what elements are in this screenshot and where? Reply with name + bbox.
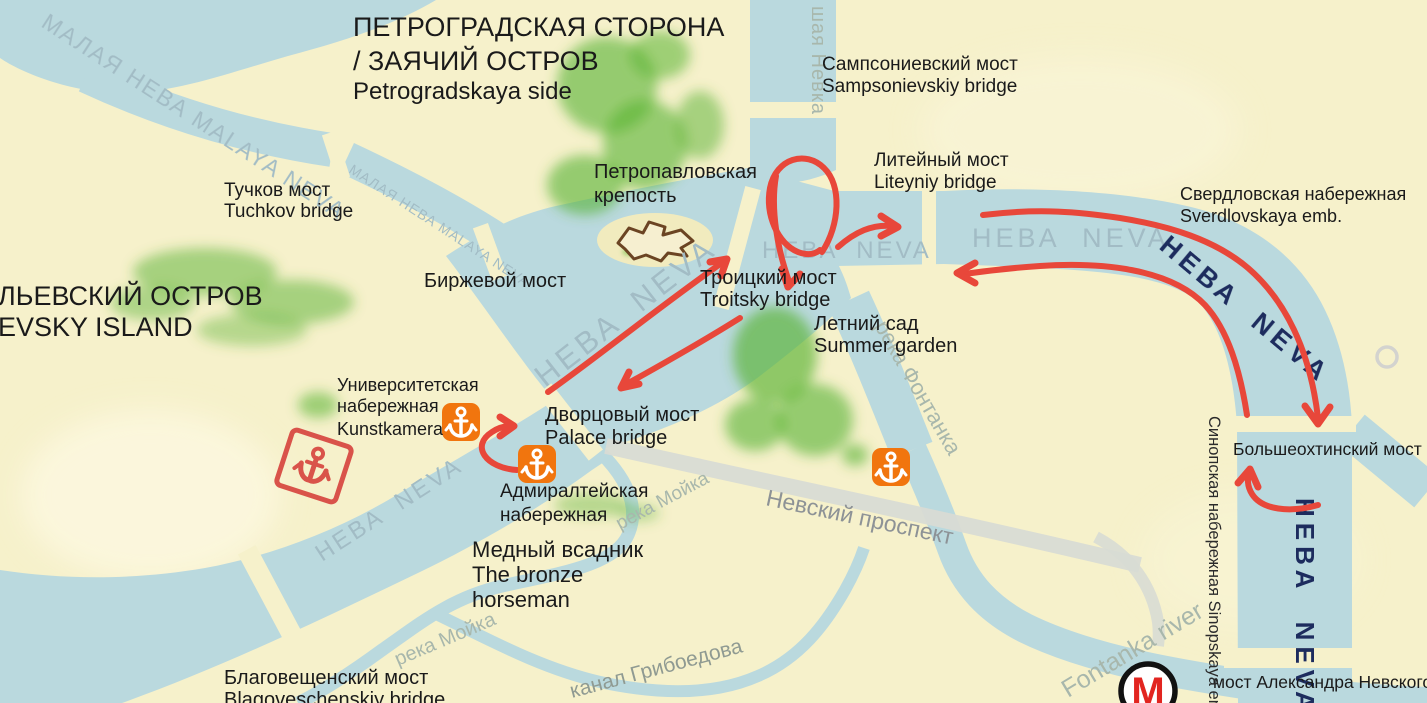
- metro-letter: M: [1131, 670, 1164, 703]
- label-line: Tuchkov bridge: [224, 201, 353, 222]
- label-line: Медный всадник: [472, 537, 643, 562]
- anchor-icon-fontanka: [872, 448, 910, 486]
- label-line: Сампсониевский мост: [822, 54, 1018, 75]
- label-line: набережная: [500, 505, 607, 526]
- label-line: Университетская: [337, 375, 479, 395]
- label-tuchkov-bridge: Тучков мост Tuchkov bridge: [224, 180, 353, 222]
- metro-icon: M: [1121, 664, 1175, 703]
- label-line: Литейный мост: [874, 150, 1009, 171]
- map-stage: МАЛАЯ НЕВА MALAYA NEVA МАЛАЯ НЕВА MALAYA…: [0, 0, 1427, 703]
- label-line: Sverdlovskaya emb.: [1180, 206, 1342, 226]
- label-line: Troitsky bridge: [700, 289, 830, 311]
- label-line: Summer garden: [814, 335, 957, 357]
- label-bolsheokhtinsky-bridge: Большеохтинский мост: [1233, 439, 1422, 459]
- anchor-icon-admiralty: [518, 445, 556, 483]
- gap-alexander-nevsky-bridge: [1224, 648, 1356, 668]
- label-line: Sampsonievskiy bridge: [822, 76, 1017, 97]
- label-line: Blagoveschenskiy bridge: [224, 689, 445, 703]
- label-line: Петропавловская: [594, 161, 757, 183]
- label-birzhevoy-bridge: Биржевой мост: [424, 270, 566, 292]
- label-line: Большеохтинский мост: [1233, 439, 1422, 459]
- label-line: крепость: [594, 185, 677, 207]
- label-line: Летний сад: [814, 313, 919, 335]
- label-line: / ЗАЯЧИЙ ОСТРОВ: [353, 45, 599, 76]
- label-alexander-nevsky-bridge: мост Александра Невского: [1213, 672, 1427, 692]
- label-line: Свердловская набережная: [1180, 184, 1406, 204]
- label-line: Дворцовый мост: [545, 404, 699, 426]
- water-label-neva-east: НЕВА NEVA: [972, 223, 1170, 253]
- label-line: Благовещенский мост: [224, 667, 428, 689]
- label-line: набережная: [337, 396, 439, 416]
- label-line: Liteyniy bridge: [874, 172, 997, 193]
- label-line: horseman: [472, 587, 570, 612]
- label-line: Адмиралтейская: [500, 481, 648, 502]
- label-line: Тучков мост: [224, 180, 331, 201]
- label-line: EVSKY ISLAND: [0, 312, 193, 342]
- label-troitsky-bridge: Троицкий мост Troitsky bridge: [700, 267, 842, 311]
- label-line: Petrogradskaya side: [353, 78, 572, 105]
- label-line: мост Александра Невского: [1213, 672, 1427, 692]
- label-line: Троицкий мост: [700, 267, 837, 289]
- label-line: ПЕТРОГРАДСКАЯ СТОРОНА: [353, 12, 724, 42]
- label-line: The bronze: [472, 562, 583, 587]
- label-line: ЛЬЕВСКИЙ ОСТРОВ: [0, 280, 263, 311]
- label-line: Kunstkamera: [337, 419, 444, 439]
- label-sinopskaya-emb: Синопская набережная Sinopskaya em: [1205, 416, 1223, 703]
- label-sampsonievskiy-bridge: Сампсониевский мост Sampsonievskiy bridg…: [822, 54, 1023, 97]
- map-canvas: МАЛАЯ НЕВА MALAYA NEVA МАЛАЯ НЕВА MALAYA…: [0, 0, 1427, 703]
- gap-bolsheokhtinsky-bridge: [1228, 416, 1356, 432]
- label-line: Биржевой мост: [424, 270, 566, 292]
- anchor-icon-kunstkamera: [442, 403, 480, 441]
- label-line: Palace bridge: [545, 427, 667, 449]
- label-blagoveschenskiy-bridge: Благовещенский мост Blagoveschenskiy bri…: [224, 667, 445, 703]
- label-liteyniy-bridge: Литейный мост Liteyniy bridge: [874, 150, 1014, 193]
